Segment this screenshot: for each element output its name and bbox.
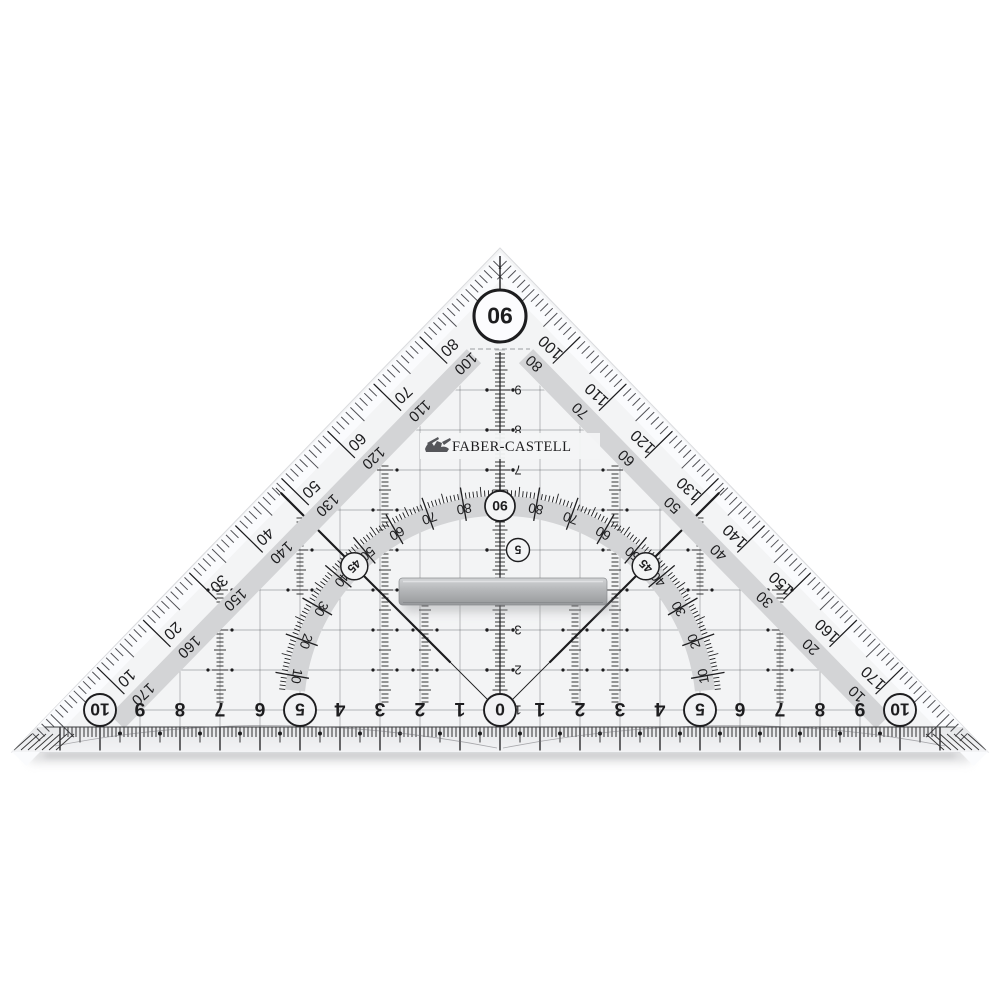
svg-text:2: 2 bbox=[574, 698, 585, 720]
svg-text:3: 3 bbox=[614, 698, 625, 720]
svg-text:10: 10 bbox=[288, 667, 305, 684]
svg-text:6: 6 bbox=[254, 698, 265, 720]
product-photo: 1234567891020304050607080102030405060708… bbox=[0, 0, 1000, 1000]
svg-text:2: 2 bbox=[514, 662, 521, 677]
svg-text:1: 1 bbox=[454, 698, 465, 720]
brand-logo: FABER-CASTELL bbox=[420, 433, 600, 459]
svg-text:90: 90 bbox=[487, 303, 513, 329]
svg-text:10: 10 bbox=[890, 700, 910, 720]
svg-text:7: 7 bbox=[775, 698, 786, 720]
svg-text:9: 9 bbox=[514, 382, 521, 397]
svg-text:6: 6 bbox=[734, 698, 745, 720]
svg-text:8: 8 bbox=[174, 698, 185, 720]
svg-text:2: 2 bbox=[414, 698, 425, 720]
svg-text:80: 80 bbox=[527, 500, 544, 517]
svg-text:8: 8 bbox=[814, 698, 825, 720]
svg-text:9: 9 bbox=[134, 698, 145, 720]
svg-text:4: 4 bbox=[654, 698, 665, 720]
grip-handle bbox=[399, 578, 613, 612]
svg-text:5: 5 bbox=[695, 700, 705, 720]
set-square: 1234567891020304050607080102030405060708… bbox=[0, 0, 1000, 1000]
svg-text:9: 9 bbox=[854, 698, 865, 720]
svg-text:5: 5 bbox=[295, 700, 305, 720]
svg-text:5: 5 bbox=[514, 543, 521, 557]
svg-text:7: 7 bbox=[514, 462, 521, 477]
svg-text:3: 3 bbox=[374, 698, 385, 720]
svg-text:10: 10 bbox=[695, 667, 712, 684]
svg-text:4: 4 bbox=[334, 698, 345, 720]
svg-text:10: 10 bbox=[90, 700, 110, 720]
svg-text:90: 90 bbox=[492, 498, 508, 514]
svg-text:3: 3 bbox=[514, 622, 521, 637]
brand-wordmark: FABER-CASTELL bbox=[452, 439, 571, 455]
svg-text:1: 1 bbox=[534, 698, 545, 720]
svg-text:0: 0 bbox=[495, 700, 505, 720]
svg-text:80: 80 bbox=[455, 500, 472, 517]
svg-text:7: 7 bbox=[215, 698, 226, 720]
